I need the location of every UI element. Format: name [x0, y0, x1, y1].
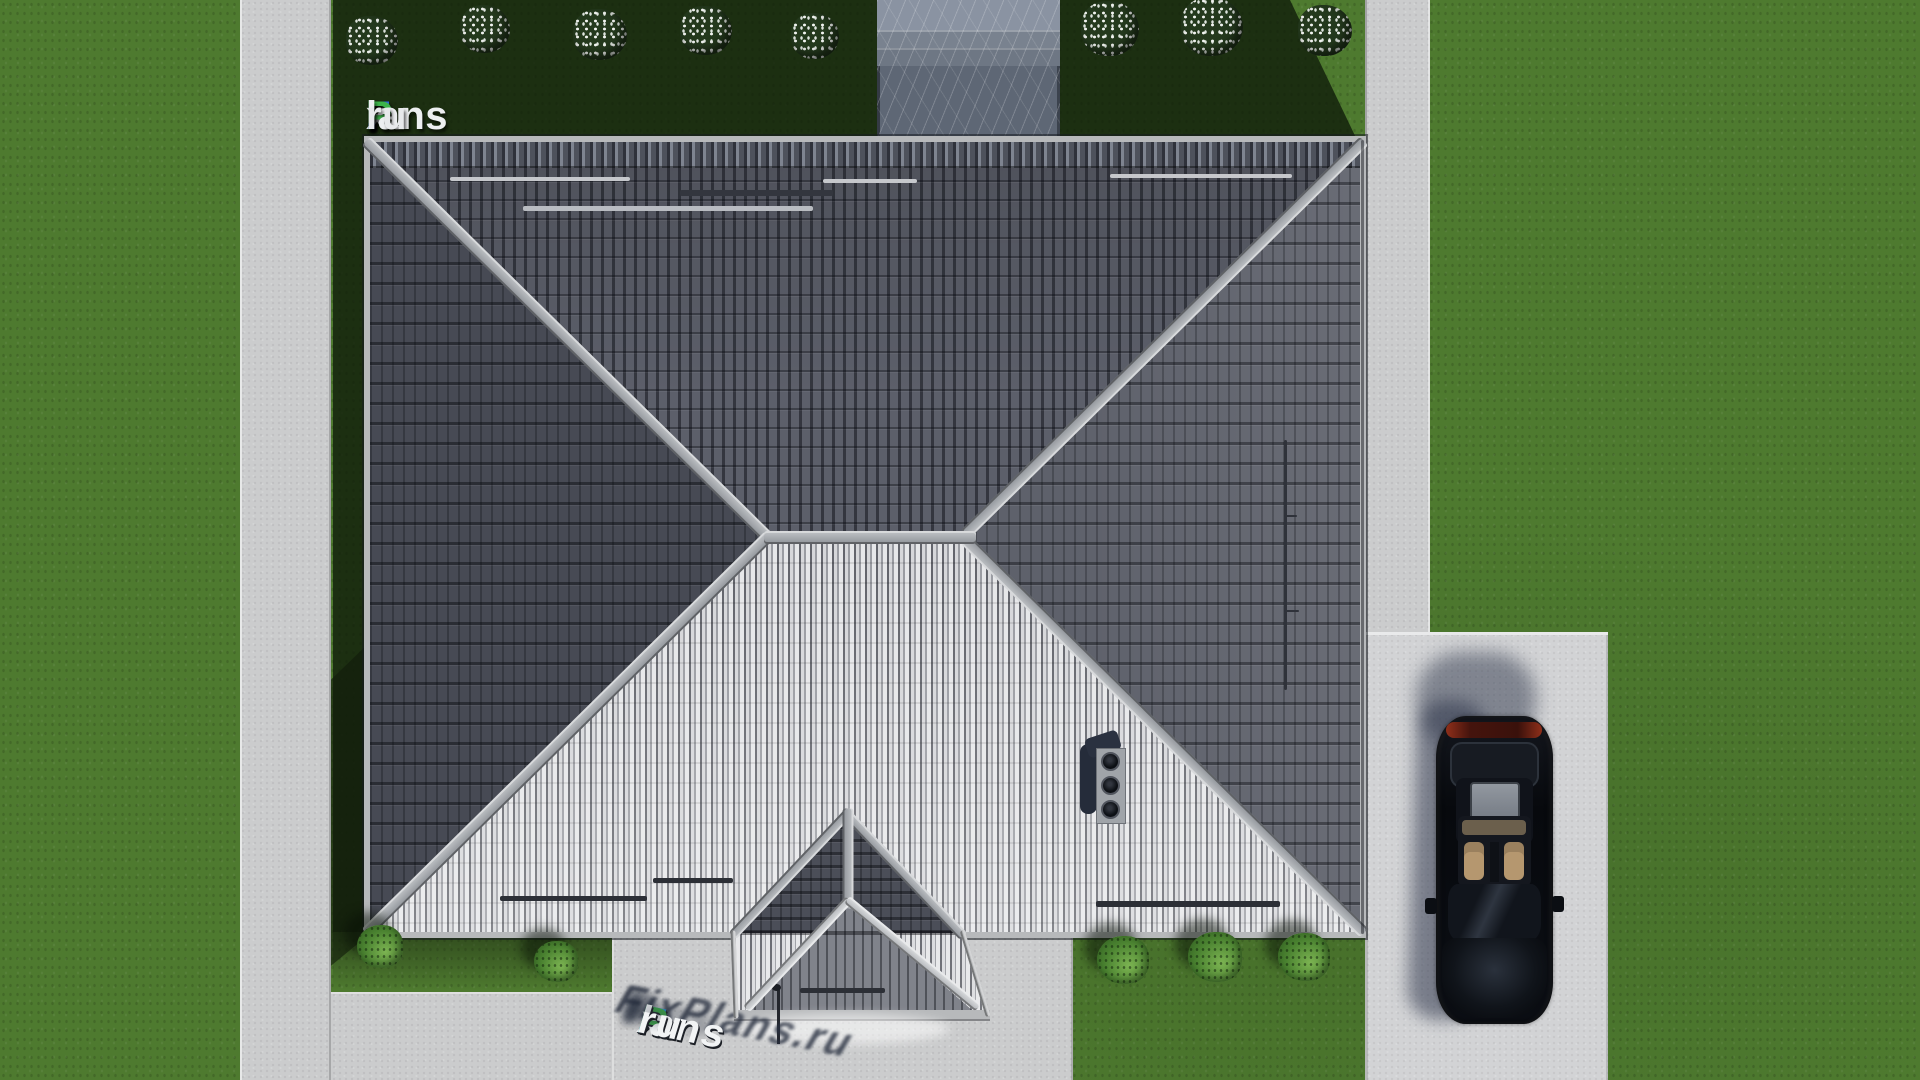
roof-vent [1101, 776, 1120, 795]
snow-guard-rail [653, 878, 733, 883]
flower-bush [791, 13, 839, 59]
snow-guard-rail [1284, 440, 1287, 690]
car-seat [1464, 842, 1484, 880]
green-bush [1097, 936, 1149, 984]
main-ridge-cap [764, 531, 976, 544]
snow-guard-rail [680, 190, 833, 196]
green-bush [357, 925, 403, 968]
car-hood [1442, 938, 1547, 1018]
aerial-render: FixPlans.ru FixPlans.ru FixPlans.ru [0, 0, 1920, 1080]
snow-guard-rail [1284, 515, 1297, 517]
dashboard [1462, 820, 1526, 835]
roof-vent [1101, 752, 1120, 771]
flower-bush [346, 16, 398, 65]
flower-bush [1181, 0, 1243, 56]
windshield [1448, 884, 1541, 940]
flower-bush [1081, 1, 1139, 56]
marble-veins [877, 0, 1060, 148]
green-bush [534, 941, 578, 982]
left-walkway [240, 0, 331, 1080]
green-bush [1188, 932, 1242, 982]
parked-sedan [1436, 716, 1553, 1024]
snow-guard-rail [800, 988, 885, 993]
roof-vent [1101, 800, 1120, 819]
snow-guard-rail [523, 206, 813, 211]
snow-guard-rail [823, 179, 917, 183]
sunroof [1470, 782, 1520, 820]
right-walkway [1365, 0, 1430, 637]
stone-terrace [877, 0, 1060, 148]
flower-bush [573, 9, 627, 60]
ridge-tile-row [370, 142, 1360, 168]
snow-guard-rail [1284, 610, 1299, 612]
snow-guard-rail [450, 177, 630, 181]
snow-guard-rail [1361, 140, 1364, 934]
tail-lights [1446, 722, 1542, 738]
side-mirror [1425, 898, 1437, 914]
logo-segment: ru [366, 94, 407, 139]
roof-vent-plate [1096, 748, 1126, 824]
snow-guard-rail [1110, 174, 1292, 178]
flower-bush [680, 6, 732, 55]
car-seat [1504, 842, 1524, 880]
porch-ridge-cap [843, 808, 854, 908]
flower-bush [460, 5, 510, 53]
snow-guard-rail [500, 896, 647, 901]
side-mirror [1552, 896, 1564, 912]
snow-guard-rail [1096, 901, 1280, 907]
green-bush [1278, 933, 1330, 981]
flower-bush [1298, 5, 1352, 56]
center-console [1490, 842, 1499, 882]
porch-eave-shadow [733, 931, 963, 935]
